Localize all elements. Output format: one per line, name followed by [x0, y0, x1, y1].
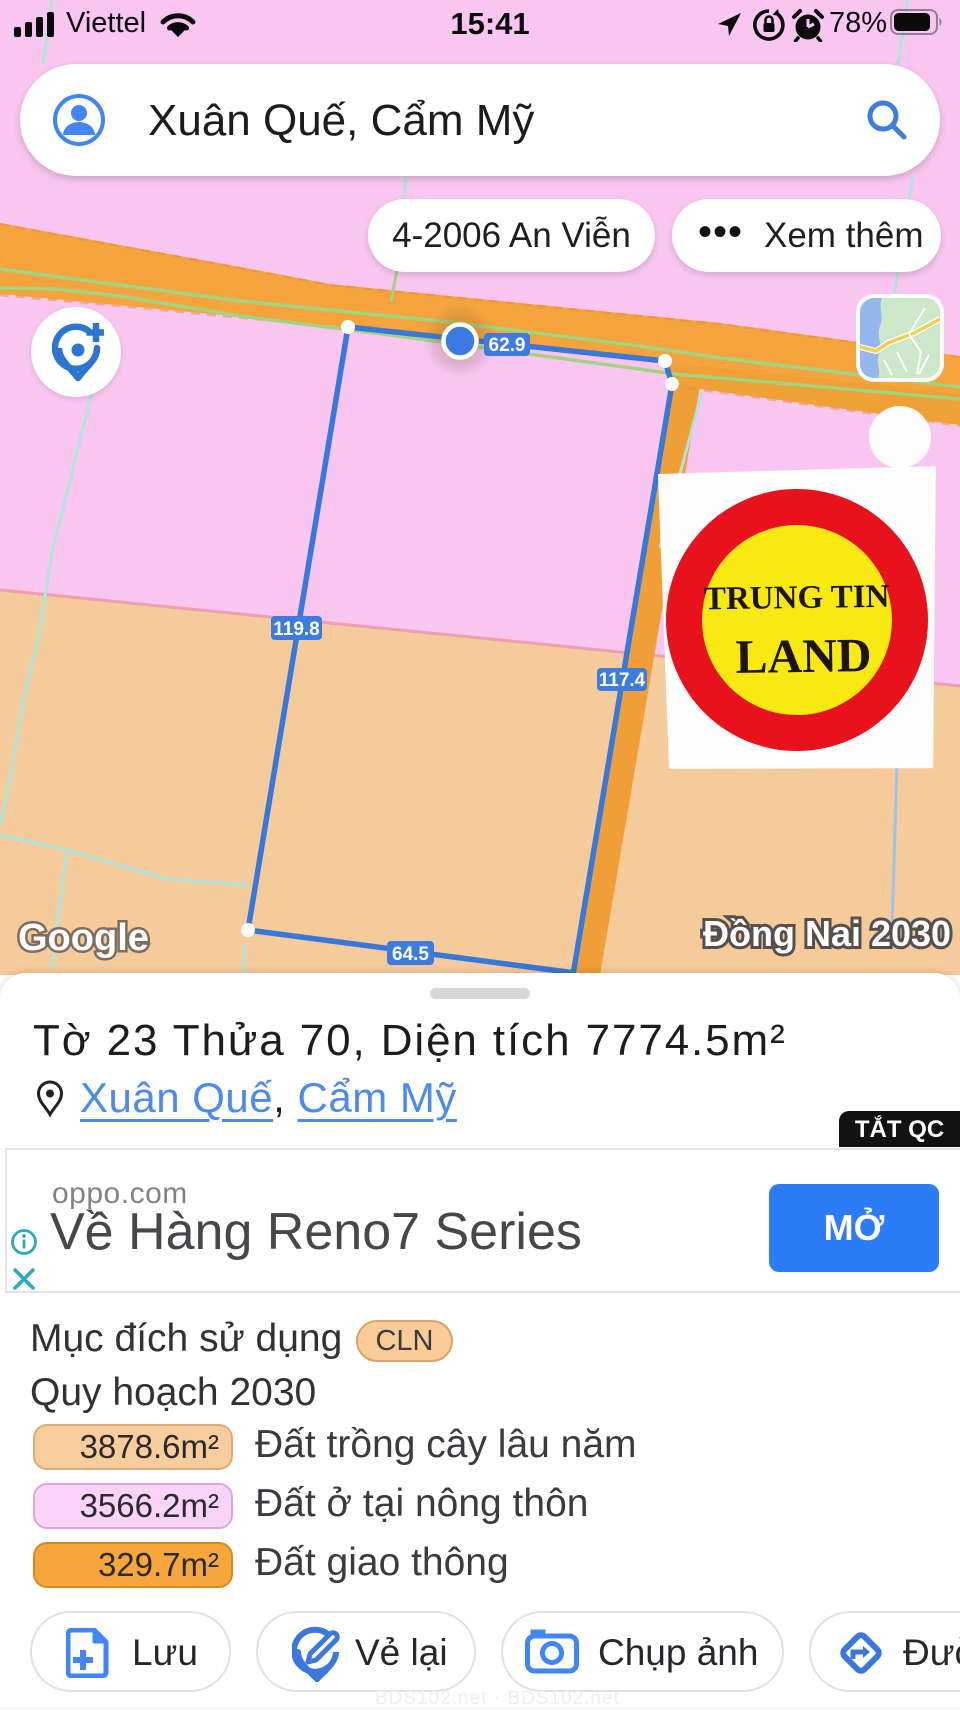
svg-text:Đồng Nai 2030: Đồng Nai 2030	[703, 913, 951, 954]
svg-text:LAND: LAND	[735, 629, 872, 684]
svg-text:62.9: 62.9	[489, 335, 526, 356]
svg-text:119.8: 119.8	[273, 619, 320, 640]
svg-text:TRUNG TIN: TRUNG TIN	[704, 579, 890, 618]
svg-text:64.5: 64.5	[392, 944, 429, 965]
svg-text:Google: Google	[18, 917, 149, 959]
svg-text:117.4: 117.4	[599, 670, 646, 691]
